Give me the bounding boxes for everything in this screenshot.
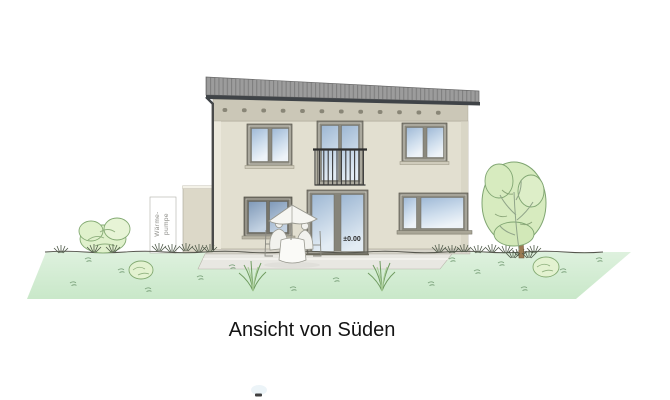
tree — [482, 162, 546, 258]
window-sill — [245, 166, 294, 169]
window-upper-left — [245, 124, 294, 169]
cropped-logo-fragment — [251, 385, 267, 397]
elevation-drawing: Wärme- pumpe — [0, 0, 670, 400]
facade-left-trim — [214, 121, 221, 249]
bush-small-right — [533, 257, 559, 277]
window-sill — [400, 162, 449, 165]
bush-small-left — [129, 261, 153, 279]
bush-left — [79, 218, 130, 253]
window-sill — [397, 231, 472, 235]
elevation-svg: Wärme- pumpe — [0, 0, 670, 400]
level-annotation: ±0.00 — [343, 236, 361, 243]
window-ground-right — [397, 193, 472, 234]
table — [279, 238, 306, 263]
annex-wall — [183, 186, 213, 252]
window-upper-right — [400, 123, 449, 165]
drawing-caption: Ansicht von Süden — [229, 319, 396, 341]
house: ±0.00 — [206, 77, 480, 255]
sign-text-line1: Wärme- — [154, 211, 161, 237]
sign-text-line2: pumpe — [163, 213, 170, 235]
